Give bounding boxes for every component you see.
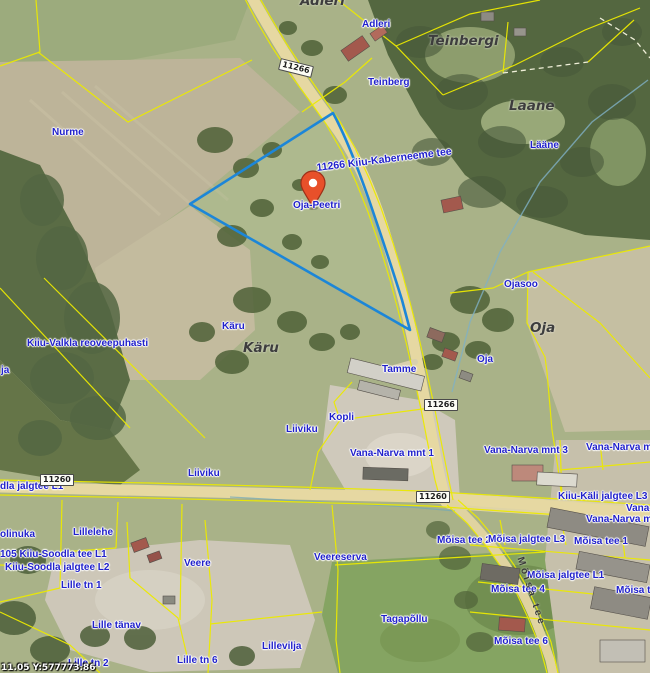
map-label-address: ja bbox=[1, 366, 9, 377]
map-label-address: Käru bbox=[222, 322, 245, 333]
map-label-cadastral: Oja bbox=[530, 321, 555, 335]
map-label-address: Tagapõllu bbox=[381, 615, 427, 626]
map-label-roadname: 11266 Kiiu-Kaberneeme tee bbox=[316, 146, 452, 174]
map-label-address: Lääne bbox=[530, 141, 559, 152]
map-label-address: Veere bbox=[184, 559, 211, 570]
map-label-address: Liiviku bbox=[188, 469, 220, 480]
map-label-address: Nurme bbox=[52, 128, 84, 139]
map-label-address: Vana- bbox=[626, 504, 650, 515]
map-label-address: Vana-Narva mnt bbox=[586, 515, 650, 526]
map-label-address: Veereserva bbox=[314, 553, 367, 564]
map-label-address: Kiiu-Soodla jalgtee L2 bbox=[5, 563, 109, 574]
map-label-address: Lille tn 6 bbox=[177, 656, 218, 667]
map-label-address: Lille tn 1 bbox=[61, 581, 102, 592]
map-label-address: Adleri bbox=[362, 20, 390, 31]
map-label-address: Lillevilja bbox=[262, 642, 301, 653]
map-label-address: Oja-Peetri bbox=[293, 201, 340, 212]
map-label-address: Kiiu-Valkla reoveepuhasti bbox=[27, 339, 148, 350]
map-label-address: 105 Kiiu-Soodla tee L1 bbox=[0, 550, 107, 561]
map-label-address: Oja bbox=[477, 355, 493, 366]
map-label-cadastral: Teinbergi bbox=[428, 34, 499, 48]
map-label-address: Mõisa tee 2 bbox=[437, 536, 491, 547]
map-label-address: Lille tänav bbox=[92, 621, 141, 632]
map-label-cadastral: Käru bbox=[243, 341, 279, 355]
map-label-address: Vana-Narva mnt 3 bbox=[484, 446, 568, 457]
map-label-address: Vana-Narva mnt 1 bbox=[350, 449, 434, 460]
road-number-shield: 11260 bbox=[40, 474, 74, 486]
map-label-address: Vana-Narva mnt bbox=[586, 443, 650, 454]
map-label-address: Teinberg bbox=[368, 78, 409, 89]
map-label-address: Liiviku bbox=[286, 425, 318, 436]
map-label-address: Mõisa te bbox=[616, 586, 650, 597]
map-labels-layer: AdleriAdleriTeinbergiTeinbergLaaneLääneN… bbox=[0, 0, 650, 673]
map-label-cadastral: Laane bbox=[509, 99, 555, 113]
map-label-cadastral: Adleri bbox=[300, 0, 345, 8]
road-number-shield: 11266 bbox=[278, 58, 314, 78]
coordinate-readout: 11.05 Y:577773.86 bbox=[1, 663, 95, 673]
map-label-address: Mõisa jalgtee L1 bbox=[527, 571, 604, 582]
map-label-address: Kiiu-Käli jalgtee L3 bbox=[558, 492, 647, 503]
road-number-shield: 11260 bbox=[416, 491, 450, 503]
map-label-address: Ojasoo bbox=[504, 280, 538, 291]
map-label-address: Tamme bbox=[382, 365, 416, 376]
map-label-address: olinuka bbox=[0, 530, 35, 541]
map-label-address: Lillelehe bbox=[73, 528, 113, 539]
map-label-address: Mõisa jalgtee L3 bbox=[488, 535, 565, 546]
map-label-address: Kopli bbox=[329, 413, 354, 424]
map-label-address: Mõisa tee 6 bbox=[494, 637, 548, 648]
road-number-shield: 11266 bbox=[424, 399, 458, 411]
satellite-map-canvas[interactable]: AdleriAdleriTeinbergiTeinbergLaaneLääneN… bbox=[0, 0, 650, 673]
map-label-address: Mõisa tee 1 bbox=[574, 537, 628, 548]
